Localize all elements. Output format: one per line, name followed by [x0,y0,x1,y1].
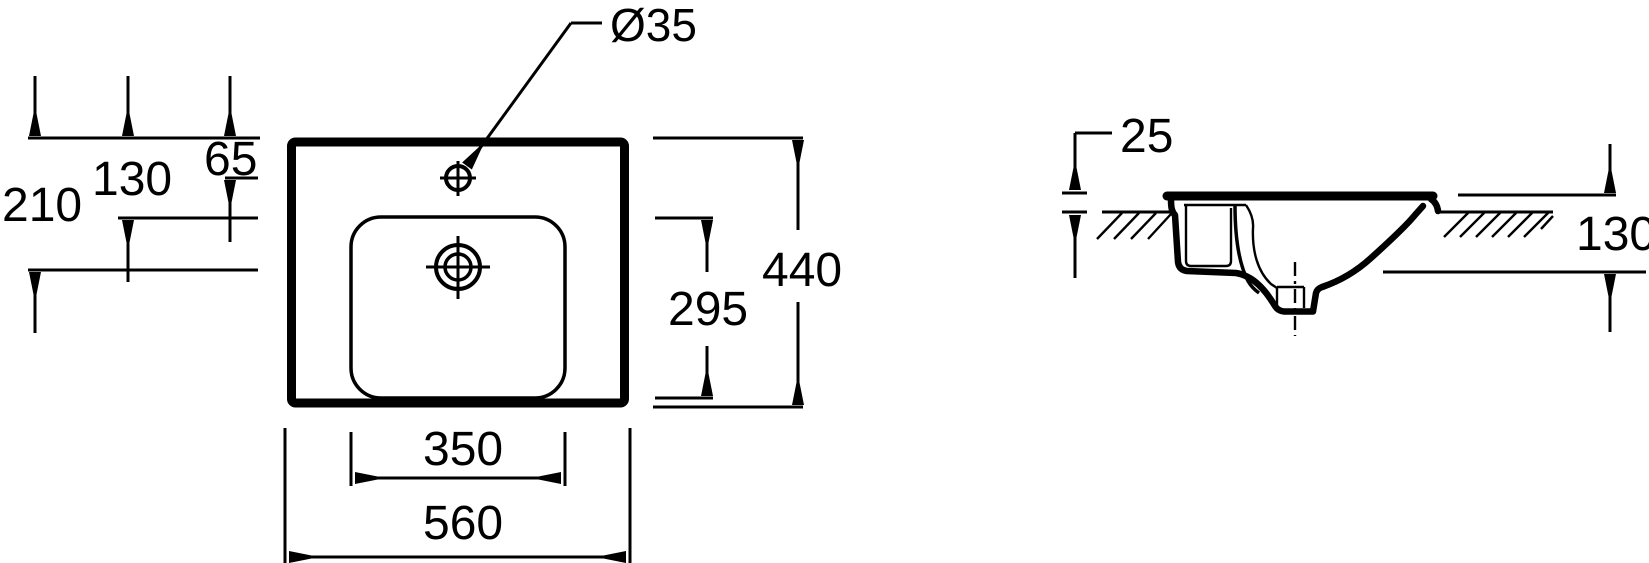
top-view [292,142,625,403]
dimension-widths: 350 560 [285,423,630,563]
dim-350-label: 350 [423,423,503,476]
dim-560-label: 560 [423,497,503,550]
drain-symbol [426,236,490,299]
overflow-cavity-outline [1186,206,1231,266]
dim-130-side-label: 130 [1576,208,1649,261]
dim-440-label: 440 [762,244,842,297]
dim-130-label: 130 [92,153,172,206]
bowl-right-wall-inner [1323,208,1420,289]
dimension-top-offsets: 210 130 65 [2,76,260,333]
drawing-canvas: Ø35 210 130 65 295 440 [0,0,1649,563]
counter-left [1097,212,1172,239]
faucet-hole-symbol [440,161,476,196]
dimension-rim-height: 25 [1062,110,1173,278]
technical-drawing: Ø35 210 130 65 295 440 [0,0,1649,563]
basin-section-outline [1171,200,1423,312]
counter-right [1440,212,1553,237]
dimension-depths: 295 440 [653,138,842,407]
drain-recess [1277,287,1304,308]
dim-65-label: 65 [204,133,257,186]
hole-diameter-label: Ø35 [610,0,697,51]
dim-295-label: 295 [668,283,748,336]
dim-210-label: 210 [2,179,82,232]
side-section-view: 25 130 [1062,110,1649,336]
dim-25-label: 25 [1120,110,1173,163]
rim-right-lip [1431,199,1438,211]
dimension-mounting-depth: 130 [1383,144,1649,332]
